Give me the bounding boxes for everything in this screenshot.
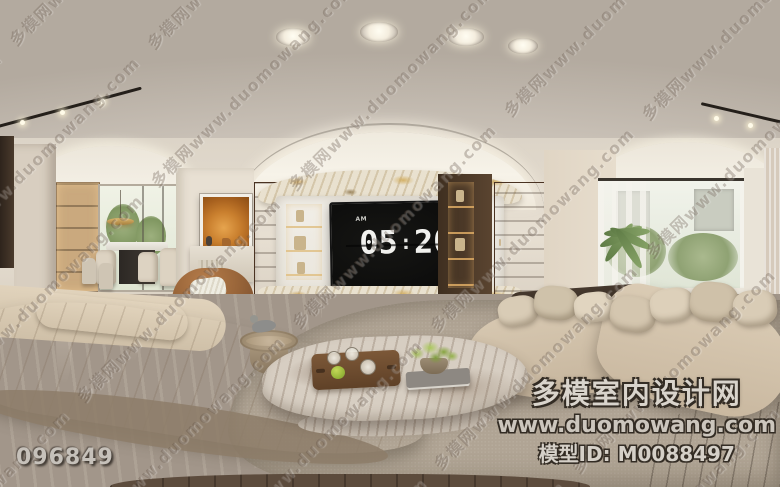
drinking-glass — [327, 351, 341, 365]
recessed-light — [448, 28, 484, 46]
door-handle — [499, 239, 501, 246]
model-id-label: 模型ID: — [539, 442, 611, 466]
pendant-lamp — [107, 218, 134, 225]
model-id-line: 模型ID: M0088497 — [497, 444, 776, 464]
green-apple — [331, 366, 345, 379]
tray-handle — [316, 369, 325, 373]
site-url: www.duomowang.com — [497, 415, 776, 437]
wood-floor-nadir-strip — [110, 474, 590, 487]
clock-meridiem: AM — [355, 216, 367, 223]
horse-figurine — [222, 238, 231, 246]
render-id: 096849 — [16, 445, 114, 470]
dining-chair — [138, 252, 158, 282]
track-light-dot — [748, 123, 753, 128]
shelf-decor — [296, 210, 304, 222]
shelf-decor — [455, 238, 465, 251]
track-light-dot — [20, 120, 25, 125]
drinking-glass — [345, 347, 359, 361]
site-name: 多模室内设计网 — [497, 380, 776, 408]
model-id-value: M0088497 — [618, 442, 735, 466]
shelf-decor — [294, 236, 306, 250]
display-shelves — [286, 204, 322, 280]
sofa-pillow — [533, 284, 580, 322]
shelf-decor — [456, 190, 464, 202]
recessed-light — [276, 28, 310, 46]
drinking-glass — [360, 359, 376, 375]
tray-handle — [387, 365, 396, 369]
track-light-dot — [60, 110, 65, 115]
recessed-light — [508, 38, 538, 54]
track-light-dot — [100, 99, 105, 104]
counter-stool — [99, 263, 113, 289]
lit-display-niche — [448, 182, 474, 288]
clock-hours: 05 — [359, 225, 398, 260]
greenery-outside — [668, 233, 738, 281]
vase-decor — [206, 236, 212, 246]
panorama-render: AM 05 : 20 — [0, 0, 780, 487]
wood-door-right — [494, 182, 546, 307]
pendant-cord — [120, 190, 121, 219]
counter-stool — [82, 258, 96, 284]
track-light-dot — [714, 116, 719, 121]
woven-side-table — [240, 330, 298, 352]
white-pillar — [744, 168, 766, 302]
building-outside — [694, 189, 734, 231]
watermark-brand-block: 多模室内设计网 www.duomowang.com 模型ID: M0088497 — [497, 380, 776, 464]
shelf-decor — [297, 262, 305, 274]
recessed-light — [360, 22, 398, 42]
clock-separator: : — [398, 225, 415, 259]
table-plant — [406, 338, 460, 366]
dark-cabinet-left — [0, 136, 14, 268]
